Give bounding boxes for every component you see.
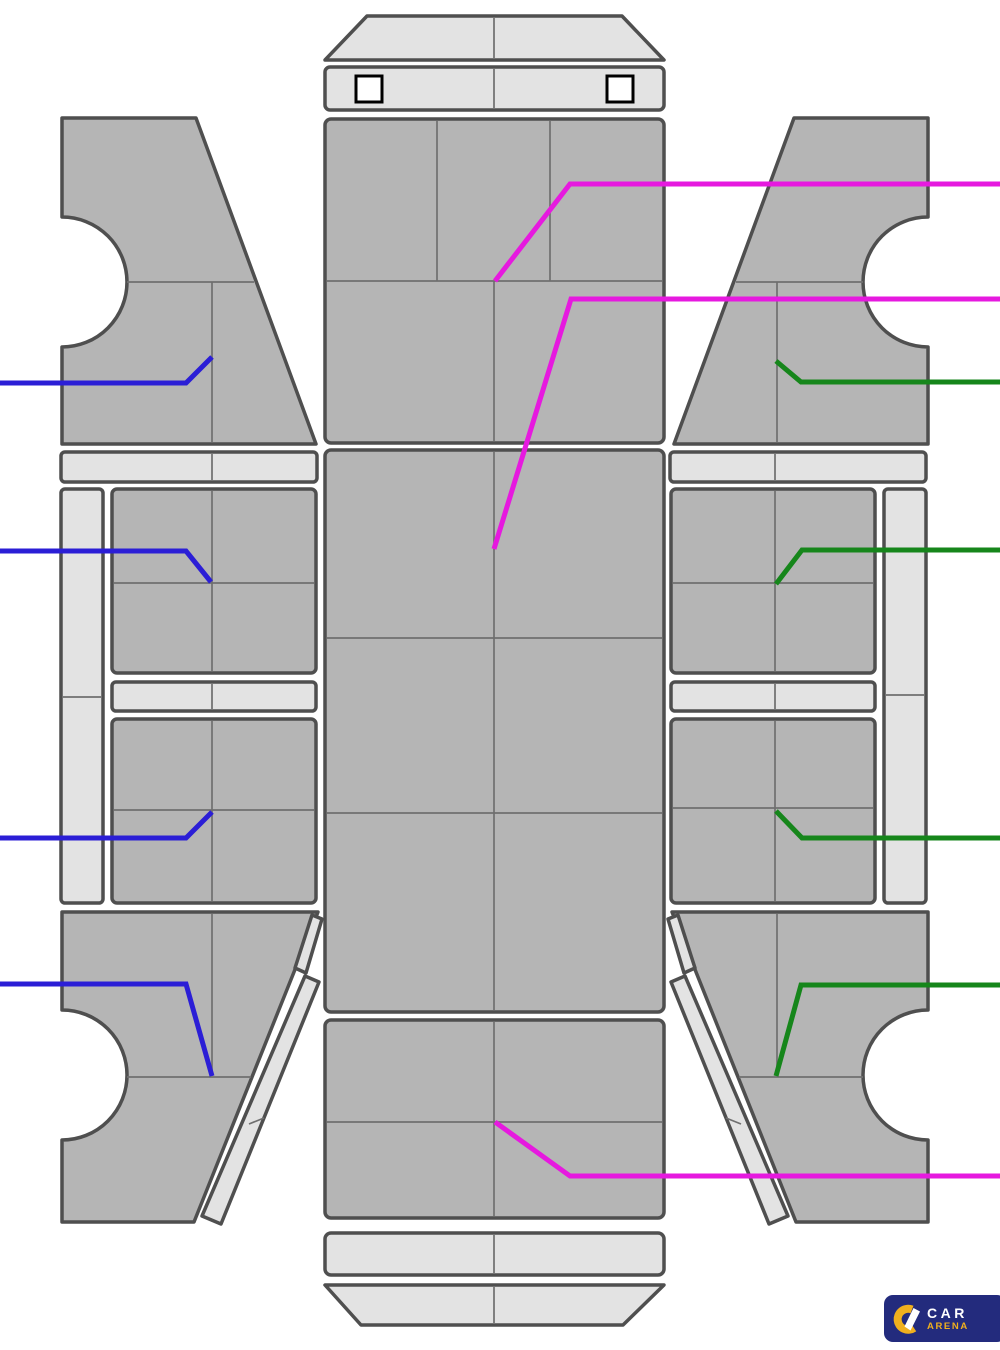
logo-text-car: CAR	[927, 1306, 969, 1320]
car-panel-diagram: CAR ARENA	[0, 0, 1000, 1350]
panel-front-door-right	[671, 489, 875, 673]
logo-text-arena: ARENA	[927, 1322, 969, 1332]
car-body-map	[0, 0, 1000, 1350]
car-arena-logo: CAR ARENA	[884, 1295, 1000, 1342]
panel-rear-door-right	[671, 719, 875, 903]
roof-rail-right	[670, 452, 926, 482]
right-headlight-marker	[607, 76, 633, 102]
left-headlight-marker	[356, 76, 382, 102]
panel-front-fender-left	[62, 118, 316, 444]
roof-rail-left	[61, 452, 317, 482]
b-pillar-right	[671, 682, 875, 711]
panel-front-door-left	[112, 489, 316, 673]
b-pillar-left	[112, 682, 316, 711]
panel-rear-door-left	[112, 719, 316, 903]
car-arena-logo-icon	[892, 1303, 922, 1335]
panel-front-fender-right	[674, 118, 928, 444]
